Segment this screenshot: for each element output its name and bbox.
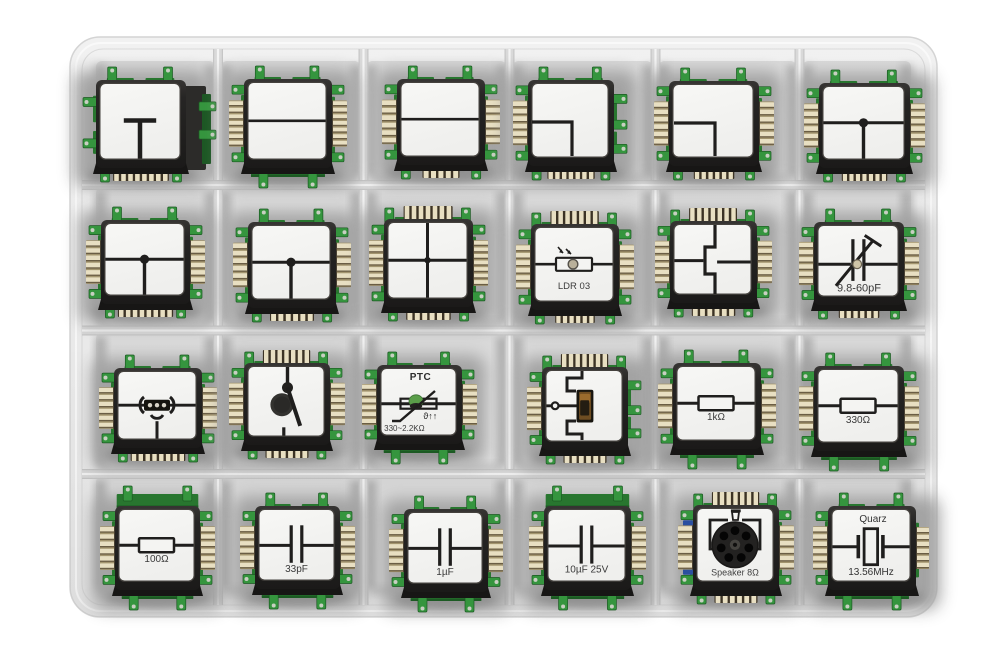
svg-text:PTC: PTC — [410, 372, 432, 383]
svg-text:ϑ↑↑: ϑ↑↑ — [423, 411, 437, 421]
svg-text:Quarz: Quarz — [859, 514, 886, 525]
svg-text:1kΩ: 1kΩ — [707, 412, 726, 423]
svg-text:33pF: 33pF — [285, 564, 308, 575]
svg-text:330Ω: 330Ω — [846, 415, 871, 426]
svg-text:330~2.2KΩ: 330~2.2KΩ — [384, 424, 424, 433]
svg-text:9.8-60pF: 9.8-60pF — [837, 283, 881, 295]
svg-text:100Ω: 100Ω — [144, 554, 169, 565]
svg-text:1µF: 1µF — [436, 567, 453, 578]
svg-text:10µF 25V: 10µF 25V — [565, 565, 609, 576]
svg-text:Speaker 8Ω: Speaker 8Ω — [711, 568, 759, 578]
svg-text:13.56MHz: 13.56MHz — [848, 567, 894, 578]
svg-text:LDR 03: LDR 03 — [558, 281, 590, 292]
